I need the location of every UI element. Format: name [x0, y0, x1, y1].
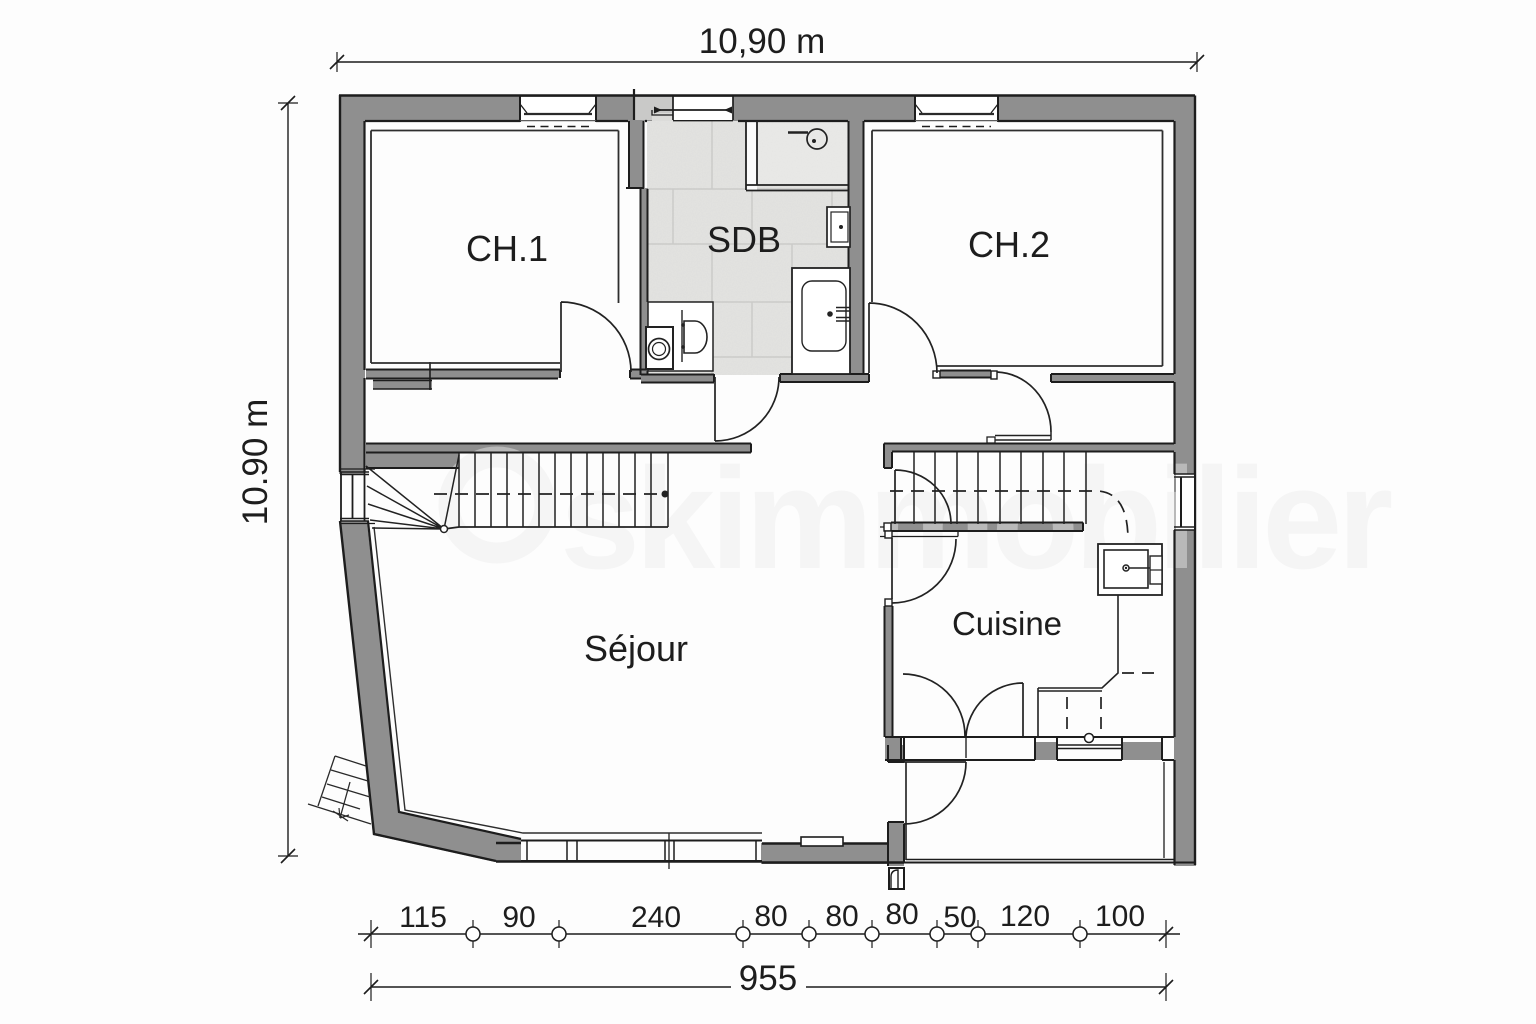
svg-text:80: 80 — [825, 900, 858, 933]
svg-text:80: 80 — [885, 898, 918, 931]
svg-text:240: 240 — [631, 901, 681, 934]
svg-text:100: 100 — [1095, 900, 1145, 933]
svg-text:10.90 m: 10.90 m — [236, 399, 275, 525]
svg-text:10,90 m: 10,90 m — [699, 22, 825, 61]
svg-text:955: 955 — [739, 959, 797, 998]
svg-text:115: 115 — [399, 901, 447, 934]
svg-text:CH.1: CH.1 — [466, 228, 548, 269]
svg-text:Séjour: Séjour — [584, 628, 688, 669]
svg-text:skimmobilier: skimmobilier — [560, 438, 1391, 599]
svg-text:SDB: SDB — [707, 219, 781, 260]
svg-text:80: 80 — [754, 900, 787, 933]
svg-text:Cuisine: Cuisine — [952, 605, 1062, 642]
svg-text:90: 90 — [502, 901, 535, 934]
svg-text:120: 120 — [1000, 900, 1050, 933]
svg-text:CH.2: CH.2 — [968, 224, 1050, 265]
svg-text:50: 50 — [943, 901, 976, 934]
